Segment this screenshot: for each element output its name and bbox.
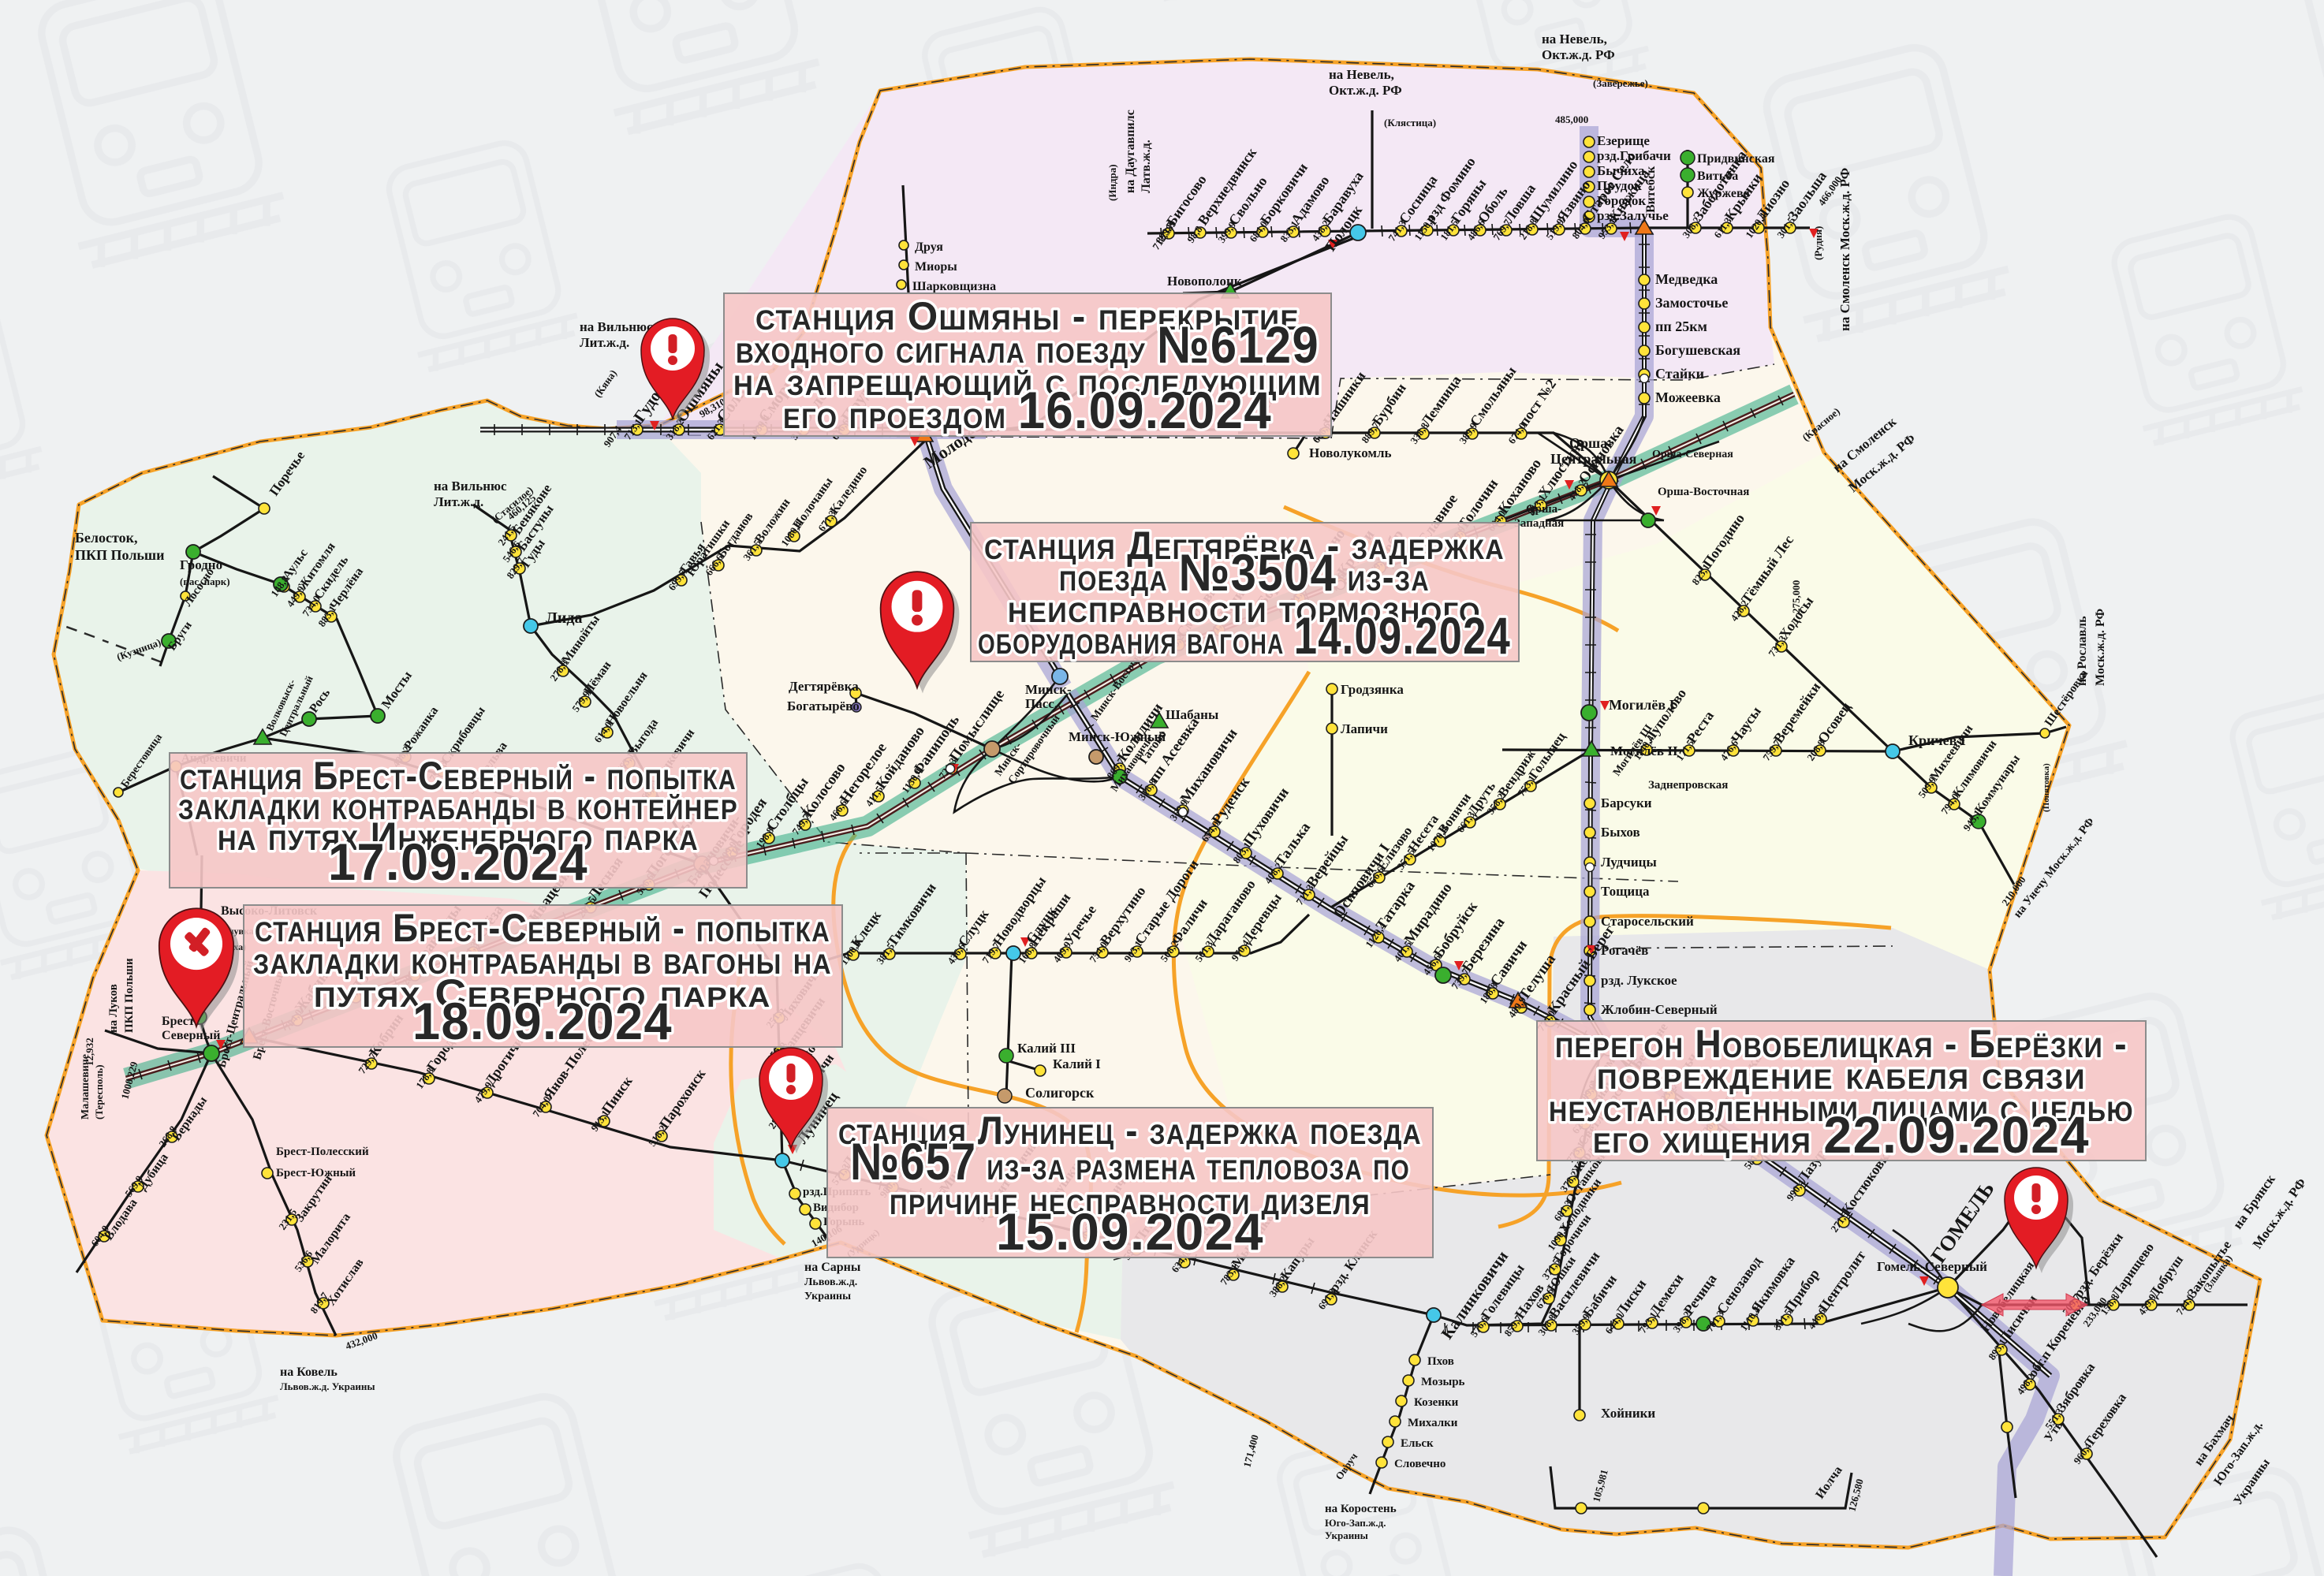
- svg-text:Украины: Украины: [1325, 1529, 1368, 1541]
- svg-text:Лит.ж.д.: Лит.ж.д.: [580, 335, 629, 350]
- svg-text:(Завережье): (Завережье): [1593, 77, 1648, 89]
- svg-text:Орша-Северная: Орша-Северная: [1652, 449, 1733, 460]
- svg-text:на Вильнюс: на Вильнюс: [434, 479, 507, 494]
- svg-text:Витебск: Витебск: [1644, 166, 1658, 213]
- svg-text:Львов.ж.д. Украины: Львов.ж.д. Украины: [280, 1380, 375, 1392]
- svg-text:Замосточье: Замосточье: [1655, 295, 1728, 311]
- svg-text:Шарковщизна: Шарковщизна: [912, 280, 996, 293]
- svg-text:Тощица: Тощица: [1601, 884, 1650, 899]
- svg-text:Шабаны: Шабаны: [1166, 707, 1218, 722]
- svg-text:(Понятовка): (Понятовка): [2042, 763, 2051, 812]
- svg-text:Журжево: Журжево: [1697, 187, 1750, 200]
- svg-text:485,000: 485,000: [1555, 114, 1588, 125]
- svg-text:Львов.ж.д.: Львов.ж.д.: [804, 1276, 857, 1288]
- svg-text:Солигорск: Солигорск: [1025, 1085, 1095, 1101]
- svg-text:Орша-Восточная: Орша-Восточная: [1658, 486, 1749, 498]
- svg-text:Центральная: Центральная: [1550, 451, 1637, 467]
- svg-text:Лапичи: Лапичи: [1341, 721, 1388, 736]
- svg-text:рзд. Лукское: рзд. Лукское: [1601, 973, 1677, 988]
- svg-text:Друя: Друя: [915, 240, 943, 254]
- svg-text:Моск.ж.д. РФ: Моск.ж.д. РФ: [2094, 609, 2107, 686]
- svg-text:на Невель,: на Невель,: [1542, 32, 1607, 47]
- svg-text:Латв.ж.д.: Латв.ж.д.: [1140, 140, 1153, 193]
- svg-text:Северный: Северный: [162, 1029, 220, 1042]
- svg-text:Окт.ж.д. РФ: Окт.ж.д. РФ: [1542, 47, 1615, 62]
- svg-text:Орша-: Орша-: [1569, 435, 1612, 451]
- svg-text:18.09.2024: 18.09.2024: [412, 992, 673, 1050]
- svg-text:Ельск: Ельск: [1401, 1437, 1434, 1450]
- svg-text:Городок: Городок: [1597, 193, 1646, 208]
- svg-text:Калий III: Калий III: [1017, 1041, 1076, 1056]
- svg-text:(Индра): (Индра): [1106, 164, 1118, 201]
- svg-text:Новополоцк: Новополоцк: [1167, 274, 1242, 289]
- svg-text:15.09.2024: 15.09.2024: [996, 1202, 1264, 1261]
- svg-text:на Вильнюс: на Вильнюс: [580, 319, 653, 334]
- svg-text:Заднепровская: Заднепровская: [1648, 779, 1728, 792]
- svg-text:Окт.ж.д. РФ: Окт.ж.д. РФ: [1329, 83, 1402, 98]
- svg-text:Украины: Украины: [804, 1291, 851, 1302]
- svg-text:(Тересполь): (Тересполь): [93, 1064, 105, 1120]
- svg-text:Юго-Зап.ж.д.: Юго-Зап.ж.д.: [1325, 1517, 1386, 1529]
- svg-text:Дегтярёвка: Дегтярёвка: [789, 679, 859, 694]
- svg-text:на Даугавпилс: на Даугавпилс: [1124, 110, 1137, 193]
- svg-text:Быхов: Быхов: [1601, 825, 1640, 840]
- svg-text:Лудчицы: Лудчицы: [1601, 855, 1657, 870]
- svg-text:на Коростень: на Коростень: [1325, 1503, 1397, 1515]
- svg-text:Словечно: Словечно: [1394, 1458, 1446, 1470]
- svg-text:Михалки: Михалки: [1408, 1417, 1458, 1429]
- svg-text:ПКП Польши: ПКП Польши: [123, 958, 136, 1033]
- svg-text:Брест-Полесский: Брест-Полесский: [276, 1146, 369, 1158]
- svg-text:Козенки: Козенки: [1414, 1396, 1459, 1409]
- svg-text:на Луков: на Луков: [107, 984, 120, 1033]
- svg-text:Гомель-Северный: Гомель-Северный: [1877, 1259, 1987, 1274]
- svg-text:Миоры: Миоры: [915, 260, 957, 274]
- svg-text:Могилёв I: Могилёв I: [1609, 697, 1675, 713]
- svg-text:Можеевка: Можеевка: [1655, 389, 1721, 405]
- svg-text:Придвинская: Придвинская: [1697, 152, 1775, 166]
- svg-text:Хойники: Хойники: [1601, 1406, 1655, 1421]
- svg-text:на Невель,: на Невель,: [1329, 67, 1394, 82]
- svg-text:Медведка: Медведка: [1655, 271, 1718, 287]
- svg-text:Езерище: Езерище: [1597, 133, 1650, 148]
- svg-text:Богушевская: Богушевская: [1655, 342, 1740, 358]
- svg-text:на Смоленск Моск.ж.д. РФ: на Смоленск Моск.ж.д. РФ: [1837, 168, 1852, 331]
- svg-text:Пхов: Пхов: [1427, 1355, 1454, 1368]
- svg-text:на Рославль: на Рославль: [2076, 616, 2089, 686]
- svg-text:275,000: 275,000: [1790, 580, 1802, 613]
- svg-text:Минск-: Минск-: [1025, 682, 1072, 697]
- svg-text:Бычиха: Бычиха: [1597, 163, 1645, 178]
- svg-text:на Ковель: на Ковель: [280, 1365, 338, 1379]
- svg-text:Малашевиче: Малашевиче: [80, 1054, 91, 1120]
- svg-text:ПКП Польши: ПКП Польши: [75, 547, 165, 563]
- svg-text:Брест-Южный: Брест-Южный: [276, 1167, 356, 1179]
- svg-text:Гродзянка: Гродзянка: [1341, 682, 1404, 697]
- svg-text:17.09.2024: 17.09.2024: [328, 833, 588, 891]
- svg-text:Богатырёво: Богатырёво: [787, 699, 860, 713]
- svg-text:Витьба: Витьба: [1697, 170, 1738, 183]
- svg-text:пп 25км: пп 25км: [1655, 319, 1707, 334]
- svg-text:Старосельский: Старосельский: [1601, 914, 1694, 929]
- svg-text:Стайки: Стайки: [1655, 366, 1704, 382]
- svg-text:Гродно: Гродно: [180, 557, 222, 572]
- svg-text:Жлобин-Северный: Жлобин-Северный: [1601, 1002, 1718, 1017]
- svg-text:Белосток,: Белосток,: [75, 530, 137, 546]
- svg-text:Пасс.: Пасс.: [1025, 696, 1058, 711]
- svg-text:на Сарны: на Сарны: [804, 1261, 861, 1274]
- svg-text:Лида: Лида: [546, 609, 583, 627]
- svg-text:(Рудня): (Рудня): [1812, 226, 1824, 260]
- svg-text:Западная: Западная: [1514, 517, 1564, 530]
- svg-text:Прудок: Прудок: [1597, 178, 1642, 193]
- svg-text:Мозырь: Мозырь: [1421, 1376, 1465, 1388]
- svg-text:Новолукомль: Новолукомль: [1309, 445, 1392, 460]
- svg-text:Калий I: Калий I: [1053, 1056, 1101, 1071]
- svg-text:Лит.ж.д.: Лит.ж.д.: [434, 494, 483, 509]
- svg-text:Барсуки: Барсуки: [1601, 795, 1652, 810]
- svg-text:(Клястица): (Клястица): [1384, 117, 1436, 129]
- svg-text:рзд.Грибачи: рзд.Грибачи: [1597, 148, 1671, 163]
